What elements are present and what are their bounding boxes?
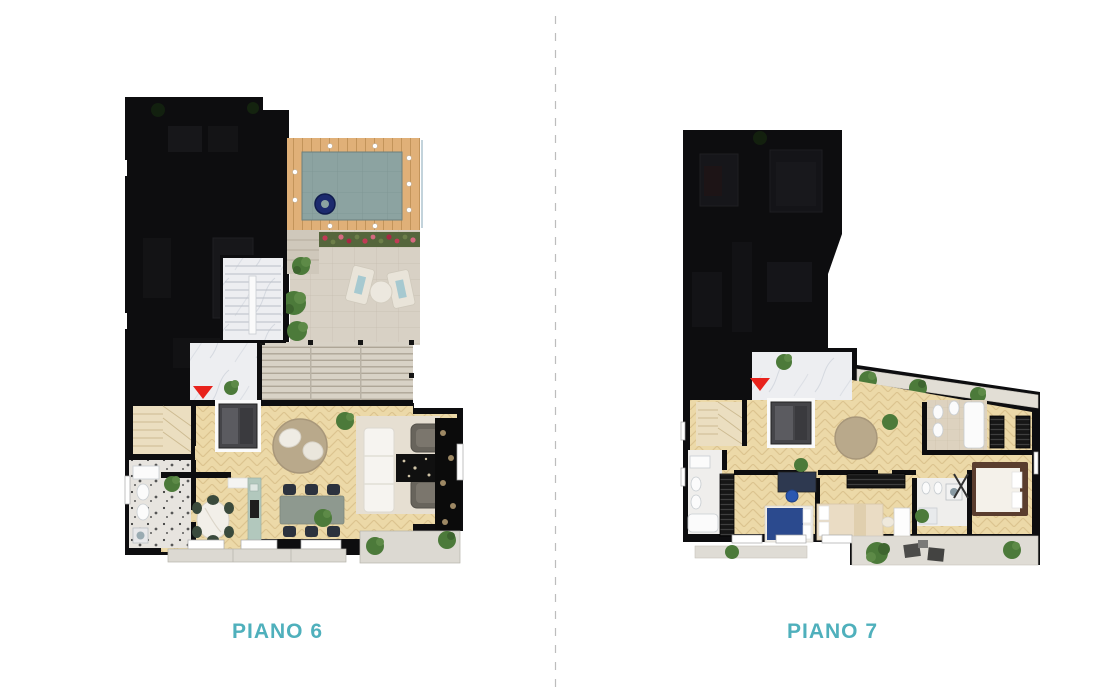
bathroom-beige bbox=[927, 400, 987, 450]
roof-terrace bbox=[360, 531, 460, 563]
internal-stairs bbox=[696, 400, 747, 446]
floor-plans-canvas: PIANO 6 PIANO 7 bbox=[0, 0, 1110, 692]
roof-terrace bbox=[852, 536, 1038, 565]
wardrobe bbox=[720, 474, 734, 536]
desk bbox=[778, 472, 816, 492]
plant-icon bbox=[882, 414, 898, 430]
entry-hall bbox=[190, 343, 257, 400]
elevator bbox=[215, 400, 261, 452]
entry-hall bbox=[750, 352, 852, 400]
bathroom-middle bbox=[915, 478, 967, 526]
bathroom-left bbox=[688, 450, 722, 534]
floor-label-piano-6: PIANO 6 bbox=[0, 620, 555, 644]
plant-icon bbox=[794, 458, 808, 472]
internal-stairs bbox=[133, 406, 191, 454]
bedroom-beige bbox=[817, 504, 910, 540]
marble-stairwell bbox=[220, 255, 286, 343]
rooftop-pool bbox=[287, 138, 423, 230]
floor-plan-piano-6 bbox=[123, 97, 463, 563]
desk-chair bbox=[882, 517, 894, 527]
terrace-chair bbox=[927, 547, 944, 562]
glass-balustrade bbox=[421, 140, 423, 228]
floor-plan-piano-7 bbox=[681, 130, 1040, 565]
desk bbox=[894, 508, 910, 538]
elevator bbox=[767, 398, 815, 448]
pool-ring-float-icon bbox=[315, 194, 335, 214]
round-table bbox=[370, 281, 392, 303]
desk-chair bbox=[786, 490, 798, 502]
floor-label-piano-7: PIANO 7 bbox=[555, 620, 1110, 644]
corridor-round-rug bbox=[835, 417, 877, 459]
round-rug-seating bbox=[273, 419, 327, 473]
plant-icon bbox=[915, 509, 929, 523]
darkened-unit-area bbox=[683, 130, 842, 355]
floor-plans-graphic bbox=[0, 0, 1110, 692]
flower-planter bbox=[319, 232, 420, 247]
pergola-louvered-roof bbox=[260, 340, 414, 408]
dining-table bbox=[280, 484, 344, 537]
balcony bbox=[168, 549, 346, 562]
sofa bbox=[364, 428, 394, 512]
balcony bbox=[695, 545, 807, 559]
corridor-wardrobe bbox=[847, 474, 905, 488]
